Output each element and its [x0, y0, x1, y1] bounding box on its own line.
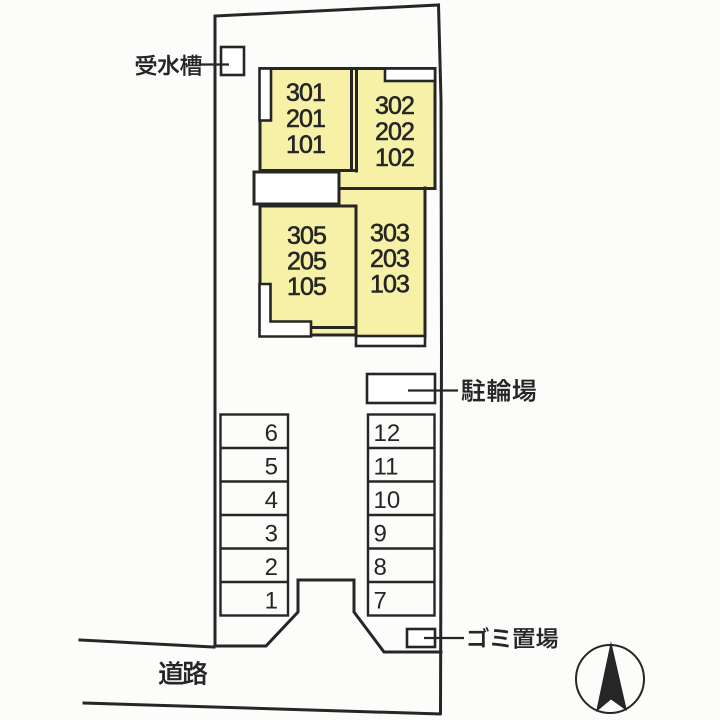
svg-text:3: 3: [265, 521, 278, 548]
svg-text:1: 1: [265, 588, 278, 615]
svg-text:2: 2: [265, 554, 278, 581]
svg-text:4: 4: [265, 487, 278, 514]
svg-text:102: 102: [375, 144, 415, 172]
svg-text:101: 101: [286, 131, 326, 159]
svg-text:9: 9: [374, 521, 387, 548]
svg-text:8: 8: [374, 554, 387, 581]
svg-text:11: 11: [374, 454, 399, 481]
svg-text:303: 303: [370, 220, 410, 248]
svg-text:302: 302: [375, 92, 415, 120]
svg-text:201: 201: [286, 105, 326, 133]
svg-text:5: 5: [265, 454, 278, 481]
svg-text:203: 203: [370, 245, 410, 273]
svg-text:6: 6: [265, 420, 278, 447]
svg-text:202: 202: [375, 118, 415, 146]
svg-text:12: 12: [374, 420, 401, 447]
svg-text:301: 301: [286, 79, 326, 107]
svg-text:10: 10: [374, 487, 401, 514]
svg-text:7: 7: [374, 588, 387, 615]
svg-text:305: 305: [287, 222, 327, 250]
svg-text:205: 205: [287, 248, 327, 276]
svg-text:105: 105: [287, 273, 327, 301]
svg-text:103: 103: [370, 271, 410, 299]
